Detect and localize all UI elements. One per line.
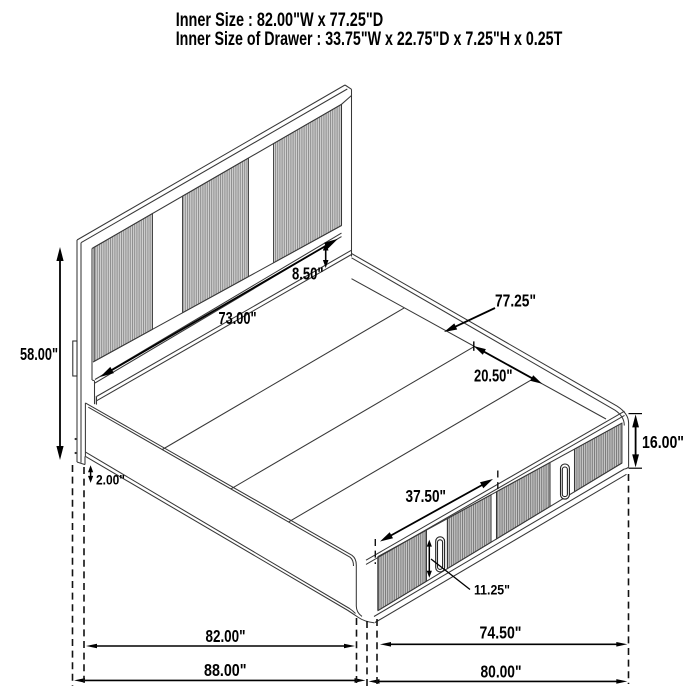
- svg-text:74.50": 74.50": [480, 623, 522, 643]
- svg-text:73.00": 73.00": [219, 308, 257, 328]
- svg-text:37.50": 37.50": [406, 486, 447, 506]
- svg-text:80.00": 80.00": [481, 662, 522, 682]
- svg-text:Inner Size of Drawer : 33.75"W: Inner Size of Drawer : 33.75"W x 22.75"D…: [176, 29, 563, 50]
- svg-text:Inner Size : 82.00"W x 77.25"D: Inner Size : 82.00"W x 77.25"D: [176, 10, 384, 31]
- svg-text:82.00": 82.00": [206, 626, 246, 646]
- svg-text:88.00": 88.00": [204, 660, 247, 680]
- svg-text:16.00": 16.00": [642, 432, 684, 452]
- svg-text:8.50": 8.50": [292, 264, 324, 284]
- svg-text:11.25": 11.25": [474, 583, 510, 598]
- svg-text:2.00": 2.00": [96, 473, 125, 488]
- svg-text:58.00": 58.00": [20, 344, 58, 364]
- svg-text:20.50": 20.50": [474, 366, 513, 386]
- svg-text:77.25": 77.25": [495, 291, 536, 311]
